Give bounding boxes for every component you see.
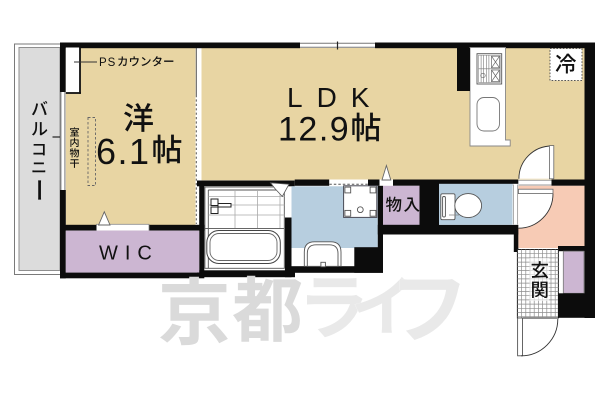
svg-text:6.1: 6.1 xyxy=(96,131,151,172)
svg-text:PS: PS xyxy=(99,57,116,69)
svg-text:12.9: 12.9 xyxy=(278,111,350,149)
svg-text:LDK: LDK xyxy=(287,82,383,113)
svg-text:WIC: WIC xyxy=(99,243,159,265)
